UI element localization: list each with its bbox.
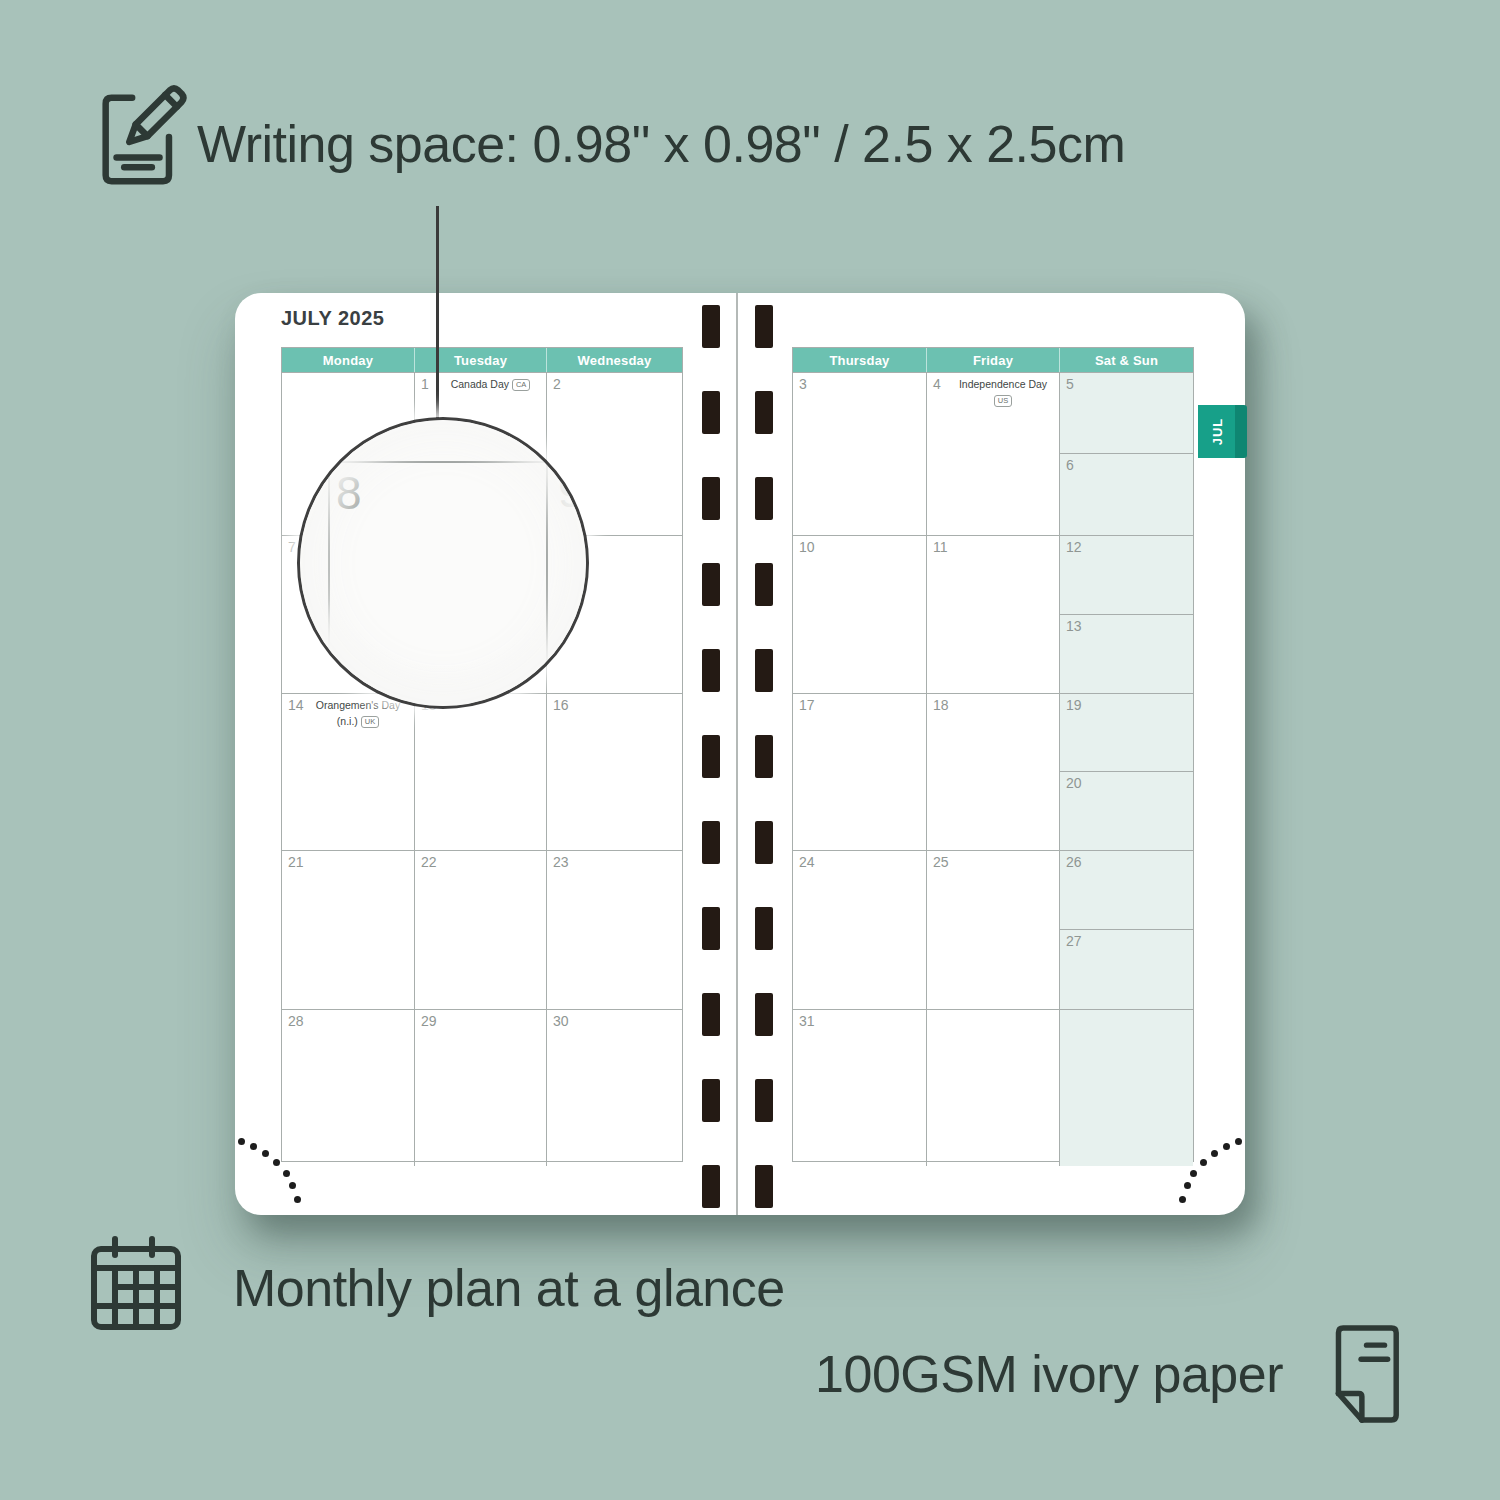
paper-sheet-icon	[1326, 1318, 1404, 1430]
day-number: 25	[933, 854, 949, 870]
weekend-subcell: 27	[1060, 930, 1193, 1009]
month-tab: JUL	[1198, 405, 1247, 458]
day-number: 10	[799, 539, 815, 555]
day-number: 1	[421, 376, 429, 392]
calendar-day-cell: 10	[793, 536, 927, 693]
paper-label: 100GSM ivory paper	[815, 1346, 1283, 1403]
day-number: 31	[799, 1013, 815, 1029]
holiday-country-badge: US	[994, 395, 1012, 407]
weekend-subcell: 19	[1060, 694, 1193, 772]
holiday-label: Orangemen's Day(n.i.) UK	[304, 698, 412, 730]
day-number: 24	[799, 854, 815, 870]
spiral-hole	[702, 1165, 720, 1208]
weekday-header: Sat & Sun	[1060, 348, 1193, 372]
planner-product-image: Writing space: 0.98" x 0.98" / 2.5 x 2.5…	[0, 0, 1500, 1500]
stitch-dot	[1179, 1196, 1186, 1203]
weekend-subcell: 5	[1060, 373, 1193, 454]
calendar-day-cell: 3	[793, 373, 927, 535]
calendar-day-cell	[927, 1010, 1060, 1166]
weekend-subcell: 12	[1060, 536, 1193, 615]
day-number: 13	[1066, 618, 1082, 634]
day-number: 4	[933, 376, 941, 392]
day-number: 28	[288, 1013, 304, 1029]
calendar-day-cell: 4Independence Day US	[927, 373, 1060, 535]
spiral-hole	[702, 477, 720, 520]
magnified-day-number: 8	[336, 466, 362, 520]
day-number: 22	[421, 854, 437, 870]
callout-line	[436, 206, 439, 422]
spiral-hole	[702, 563, 720, 606]
spiral-hole	[755, 1079, 773, 1122]
calendar-week-row: 17181920	[793, 694, 1193, 851]
stitch-dot	[1184, 1182, 1191, 1189]
spiral-hole	[702, 1079, 720, 1122]
calendar-day-cell: 14Orangemen's Day(n.i.) UK	[282, 694, 415, 850]
weekend-subcell: 26	[1060, 851, 1193, 930]
day-number: 26	[1066, 854, 1082, 870]
weekend-day-cell: 2627	[1060, 851, 1193, 1009]
calendar-day-cell: 17	[793, 694, 927, 850]
holiday-line: (n.i.) UK	[304, 714, 412, 730]
monthly-plan-label: Monthly plan at a glance	[233, 1260, 785, 1317]
stitch-dot	[238, 1138, 245, 1145]
weekday-header: Friday	[927, 348, 1060, 372]
weekend-subcell: 13	[1060, 615, 1193, 694]
spiral-hole	[755, 649, 773, 692]
calendar-day-cell: 31	[793, 1010, 927, 1166]
spiral-hole	[702, 391, 720, 434]
page-gutter-line	[736, 293, 738, 1215]
calendar-week-row: 14Orangemen's Day(n.i.) UK1516	[282, 694, 682, 851]
spiral-hole	[702, 993, 720, 1036]
calendar-day-cell: 16	[547, 694, 682, 850]
weekend-day-cell: 1920	[1060, 694, 1193, 850]
calendar-day-cell: 18	[927, 694, 1060, 850]
holiday-label: Independence Day US	[949, 377, 1057, 409]
weekday-header: Monday	[282, 348, 415, 372]
weekend-subcell: 20	[1060, 772, 1193, 850]
calendar-day-cell: 30	[547, 1010, 682, 1166]
weekday-header-row: MondayTuesdayWednesday	[282, 348, 682, 373]
stitch-dot	[250, 1143, 257, 1150]
spiral-hole	[702, 821, 720, 864]
day-number: 23	[553, 854, 569, 870]
spiral-hole	[702, 305, 720, 348]
holiday-label: Canada Day CA	[437, 377, 544, 393]
day-number: 29	[421, 1013, 437, 1029]
day-number: 12	[1066, 539, 1082, 555]
holiday-line: Independence Day US	[949, 377, 1057, 409]
spiral-hole	[755, 735, 773, 778]
day-number: 19	[1066, 697, 1082, 713]
weekday-header: Tuesday	[415, 348, 547, 372]
day-number: 21	[288, 854, 304, 870]
spiral-hole	[702, 649, 720, 692]
stitch-dot	[1223, 1143, 1230, 1150]
holiday-line: Canada Day CA	[437, 377, 544, 393]
calendar-day-cell: 21	[282, 851, 415, 1009]
stitch-dot	[294, 1196, 301, 1203]
day-number: 14	[288, 697, 304, 713]
day-number: 30	[553, 1013, 569, 1029]
day-number: 2	[553, 376, 561, 392]
spiral-hole	[755, 907, 773, 950]
calendar-day-cell: 29	[415, 1010, 547, 1166]
stitch-dot	[1235, 1138, 1242, 1145]
day-number: 3	[799, 376, 807, 392]
weekday-header-row: ThursdayFridaySat & Sun	[793, 348, 1193, 373]
day-number: 11	[933, 539, 948, 555]
weekend-day-cell: 56	[1060, 373, 1193, 535]
day-number: 18	[933, 697, 949, 713]
stitch-dot	[1211, 1150, 1218, 1157]
calendar-day-cell: 23	[547, 851, 682, 1009]
stitch-dot	[283, 1170, 290, 1177]
weekend-subcell	[1060, 1010, 1193, 1166]
stitch-dot	[289, 1182, 296, 1189]
spiral-hole	[755, 821, 773, 864]
day-number: 16	[553, 697, 569, 713]
day-number: 20	[1066, 775, 1082, 791]
weekend-subcell: 6	[1060, 454, 1193, 535]
calendar-week-row: 10111213	[793, 536, 1193, 694]
stitch-dot	[262, 1150, 269, 1157]
calendar-day-cell: 25	[927, 851, 1060, 1009]
weekday-header: Thursday	[793, 348, 927, 372]
month-tab-label: JUL	[1210, 413, 1225, 451]
calendar-day-cell: 22	[415, 851, 547, 1009]
spiral-hole	[755, 1165, 773, 1208]
spiral-hole	[702, 907, 720, 950]
weekend-day-cell: 1213	[1060, 536, 1193, 693]
calendar-week-row: 24252627	[793, 851, 1193, 1010]
calendar-day-cell: 24	[793, 851, 927, 1009]
holiday-country-badge: CA	[512, 379, 530, 391]
spiral-hole	[755, 993, 773, 1036]
day-number: 27	[1066, 933, 1082, 949]
day-number: 5	[1066, 376, 1074, 392]
calendar-day-cell: 28	[282, 1010, 415, 1166]
day-number: 6	[1066, 457, 1074, 473]
day-number: 7	[288, 539, 296, 555]
month-title: JULY 2025	[281, 307, 384, 330]
calendar-week-row: 31	[793, 1010, 1193, 1166]
holiday-country-badge: UK	[361, 716, 379, 728]
stitch-dot	[1200, 1159, 1207, 1166]
calendar-week-row: 282930	[282, 1010, 682, 1166]
spiral-hole	[755, 305, 773, 348]
weekday-header: Wednesday	[547, 348, 682, 372]
spiral-hole	[702, 735, 720, 778]
right-page-calendar: ThursdayFridaySat & Sun34Independence Da…	[792, 347, 1194, 1162]
notepad-pencil-icon	[88, 78, 194, 196]
spiral-hole	[755, 563, 773, 606]
calendar-day-cell: 11	[927, 536, 1060, 693]
spiral-hole	[755, 391, 773, 434]
stitch-dot	[273, 1159, 280, 1166]
calendar-week-row: 212223	[282, 851, 682, 1010]
writing-space-label: Writing space: 0.98" x 0.98" / 2.5 x 2.5…	[197, 116, 1125, 173]
calendar-grid-icon	[86, 1234, 186, 1334]
stitch-dot	[1190, 1170, 1197, 1177]
spiral-hole	[755, 477, 773, 520]
magnified-grid-line-left	[328, 463, 330, 658]
magnified-grid-line-top	[300, 461, 586, 463]
weekend-day-cell	[1060, 1010, 1193, 1166]
calendar-day-cell: 15	[415, 694, 547, 850]
calendar-week-row: 34Independence Day US56	[793, 373, 1193, 536]
magnifier-circle: 8 9	[297, 417, 589, 709]
day-number: 17	[799, 697, 815, 713]
